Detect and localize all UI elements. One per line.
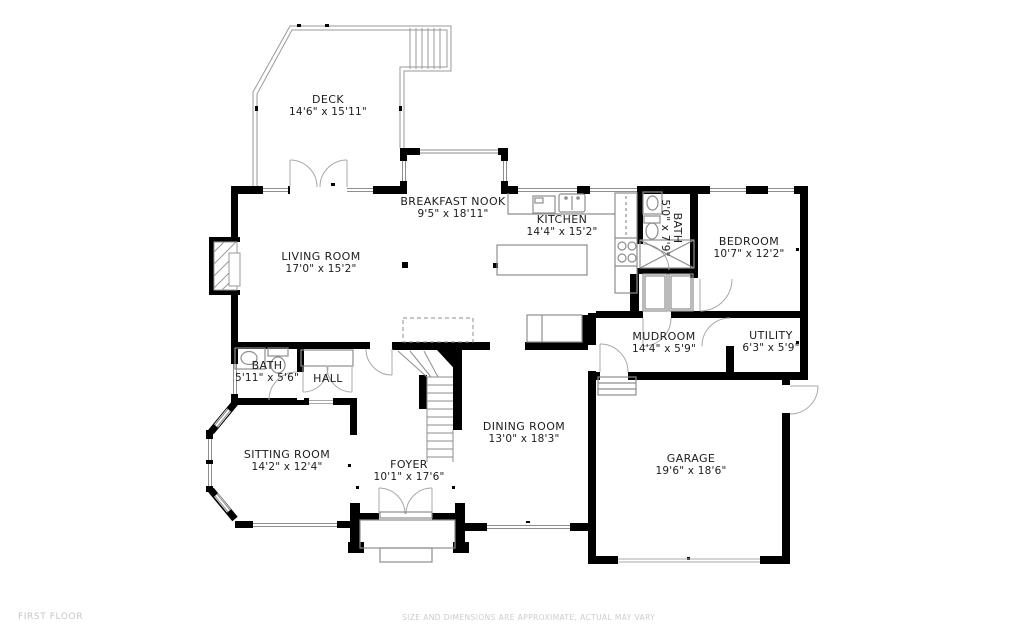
room-dims: 14'4" x 15'2" [526,226,597,239]
room-label-hall: HALL [313,372,343,385]
room-name: UTILITY [742,329,799,342]
room-dims: 9'5" x 18'11" [400,208,505,221]
room-name: KITCHEN [526,213,597,226]
room-label-garage: GARAGE 19'6" x 18'6" [655,452,726,478]
room-name: HALL [313,372,343,385]
floor-plan-drawing [0,0,1014,629]
disclaimer-text: SIZE AND DIMENSIONS ARE APPROXIMATE, ACT… [402,613,655,622]
room-label-breakfast-nook: BREAKFAST NOOK 9'5" x 18'11" [400,195,505,221]
room-dims: 10'1" x 17'6" [373,471,444,484]
room-label-kitchen: KITCHEN 14'4" x 15'2" [526,213,597,239]
room-name: BATH [235,359,299,372]
room-dims: 19'6" x 18'6" [655,465,726,478]
room-label-deck: DECK 14'6" x 15'11" [289,93,367,119]
room-name: GARAGE [655,452,726,465]
room-dims: 10'7" x 12'2" [713,248,784,261]
room-name: FOYER [373,458,444,471]
bay-window-walls [211,403,235,519]
floor-label: FIRST FLOOR [18,612,83,622]
room-dims: 14'4" x 5'9" [632,343,696,356]
room-name: BREAKFAST NOOK [400,195,505,208]
room-label-dining-room: DINING ROOM 13'0" x 18'3" [483,420,565,446]
room-name: SITTING ROOM [244,448,330,461]
room-dims: 5'11" x 5'6" [235,372,299,385]
floor-plan-page: DECK 14'6" x 15'11" BREAKFAST NOOK 9'5" … [0,0,1014,629]
room-label-mudroom: MUDROOM 14'4" x 5'9" [632,330,696,356]
room-dims: 13'0" x 18'3" [483,433,565,446]
room-label-bath-upper: BATH 5'0" x 7'9" [658,199,684,256]
room-label-bath-lower: BATH 5'11" x 5'6" [235,359,299,385]
room-dims: 17'0" x 15'2" [281,263,360,276]
room-label-foyer: FOYER 10'1" x 17'6" [373,458,444,484]
room-dims: 14'2" x 12'4" [244,461,330,474]
walls-layer [206,148,808,564]
room-name: LIVING ROOM [281,250,360,263]
room-name: BEDROOM [713,235,784,248]
room-dims: 6'3" x 5'9" [742,342,799,355]
room-name: BATH [671,199,684,256]
room-name: DINING ROOM [483,420,565,433]
room-name: DECK [289,93,367,106]
room-label-utility: UTILITY 6'3" x 5'9" [742,329,799,355]
room-label-bedroom: BEDROOM 10'7" x 12'2" [713,235,784,261]
fireplace [214,242,240,290]
room-label-sitting-room: SITTING ROOM 14'2" x 12'4" [244,448,330,474]
room-name: MUDROOM [632,330,696,343]
room-dims: 5'0" x 7'9" [658,199,671,256]
room-label-living-room: LIVING ROOM 17'0" x 15'2" [281,250,360,276]
room-dims: 14'6" x 15'11" [289,106,367,119]
